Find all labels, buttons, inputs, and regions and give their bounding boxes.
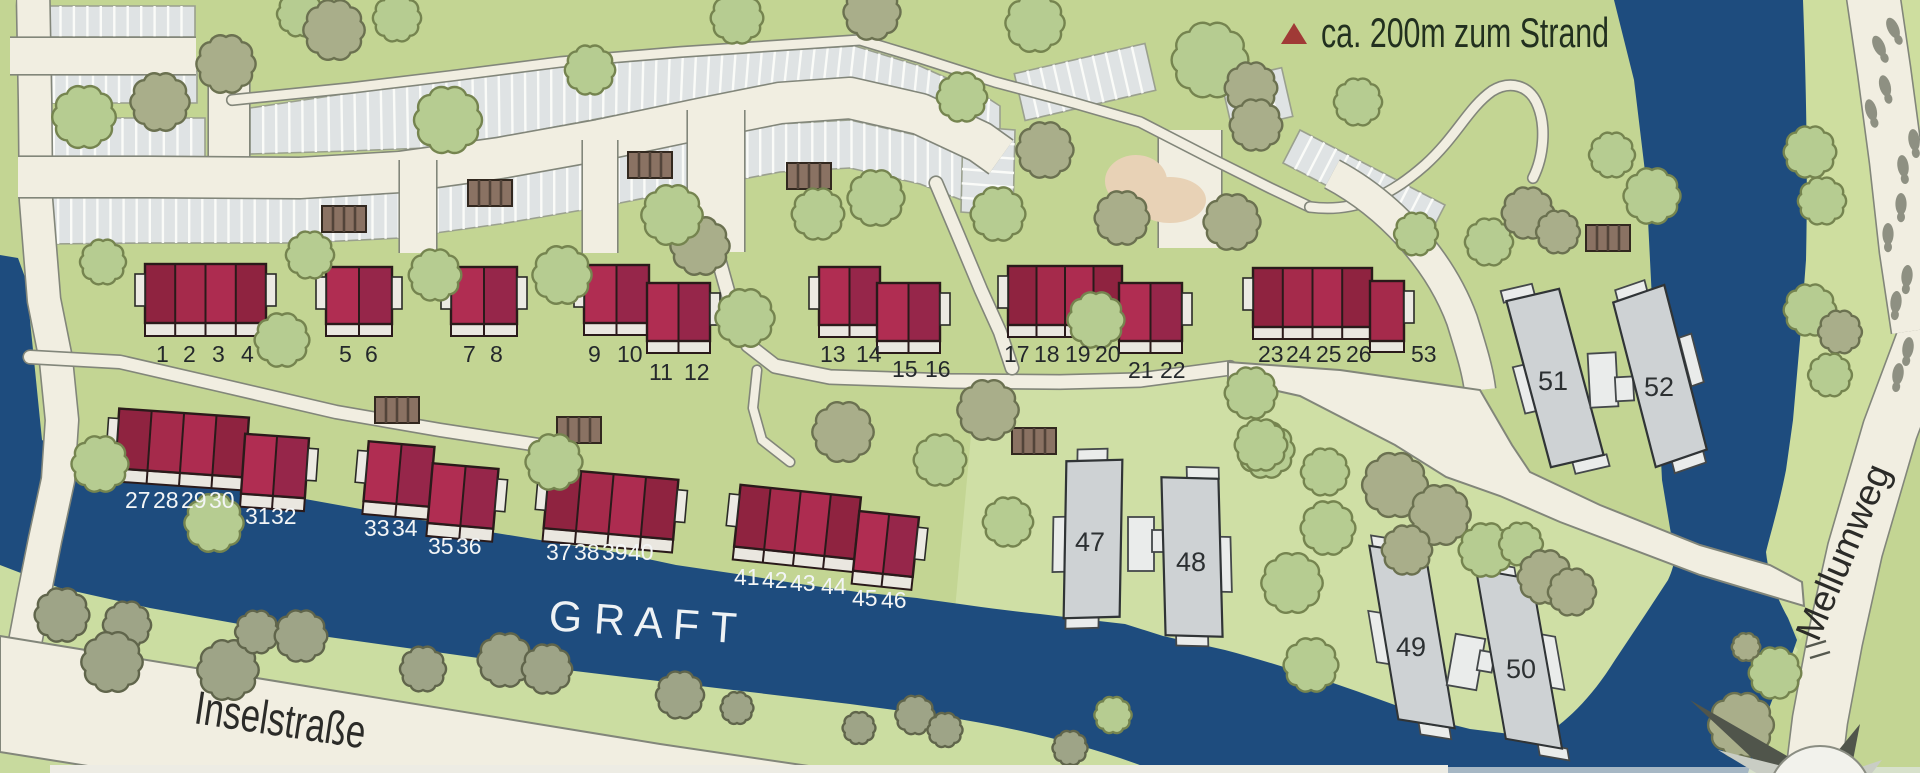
svg-text:33: 33: [364, 515, 390, 541]
svg-text:38: 38: [574, 539, 600, 565]
svg-text:42: 42: [762, 567, 788, 593]
svg-text:48: 48: [1176, 547, 1206, 577]
svg-text:3: 3: [212, 341, 225, 367]
svg-text:49: 49: [1396, 632, 1426, 662]
svg-text:52: 52: [1644, 372, 1674, 402]
svg-text:8: 8: [490, 341, 503, 367]
svg-text:26: 26: [1346, 341, 1372, 367]
svg-text:5: 5: [339, 341, 352, 367]
svg-text:15: 15: [892, 356, 918, 382]
svg-text:23: 23: [1258, 341, 1284, 367]
svg-text:4: 4: [241, 341, 254, 367]
svg-text:12: 12: [684, 359, 710, 385]
svg-text:45: 45: [852, 585, 878, 611]
svg-text:29: 29: [181, 487, 207, 513]
svg-text:44: 44: [821, 573, 847, 599]
svg-text:21: 21: [1128, 357, 1154, 383]
svg-text:51: 51: [1538, 366, 1568, 396]
svg-text:2: 2: [183, 341, 196, 367]
svg-text:35: 35: [428, 533, 454, 559]
svg-text:20: 20: [1095, 341, 1121, 367]
svg-text:17: 17: [1004, 341, 1030, 367]
svg-text:ca. 200m zum Strand: ca. 200m zum Strand: [1321, 9, 1609, 56]
svg-text:10: 10: [617, 341, 643, 367]
svg-text:6: 6: [365, 341, 378, 367]
svg-text:47: 47: [1075, 527, 1105, 557]
svg-text:22: 22: [1160, 357, 1186, 383]
svg-text:9: 9: [588, 341, 601, 367]
svg-text:43: 43: [790, 570, 816, 596]
svg-text:46: 46: [881, 587, 907, 613]
svg-text:30: 30: [209, 487, 235, 513]
svg-text:32: 32: [271, 503, 297, 529]
svg-text:1: 1: [156, 341, 169, 367]
svg-text:18: 18: [1034, 341, 1060, 367]
svg-text:16: 16: [925, 356, 951, 382]
svg-text:36: 36: [456, 533, 482, 559]
svg-text:19: 19: [1065, 341, 1091, 367]
svg-text:27: 27: [125, 487, 151, 513]
svg-text:37: 37: [546, 539, 572, 565]
svg-text:13: 13: [820, 341, 846, 367]
svg-text:34: 34: [392, 515, 418, 541]
svg-text:7: 7: [463, 341, 476, 367]
svg-text:40: 40: [628, 539, 654, 565]
svg-text:39: 39: [602, 539, 628, 565]
svg-text:31: 31: [245, 503, 271, 529]
svg-text:50: 50: [1506, 654, 1536, 684]
svg-text:14: 14: [856, 341, 882, 367]
svg-text:41: 41: [734, 564, 760, 590]
svg-text:24: 24: [1286, 341, 1312, 367]
svg-text:28: 28: [153, 487, 179, 513]
svg-text:11: 11: [649, 359, 673, 385]
svg-text:25: 25: [1316, 341, 1342, 367]
svg-text:53: 53: [1411, 341, 1437, 367]
